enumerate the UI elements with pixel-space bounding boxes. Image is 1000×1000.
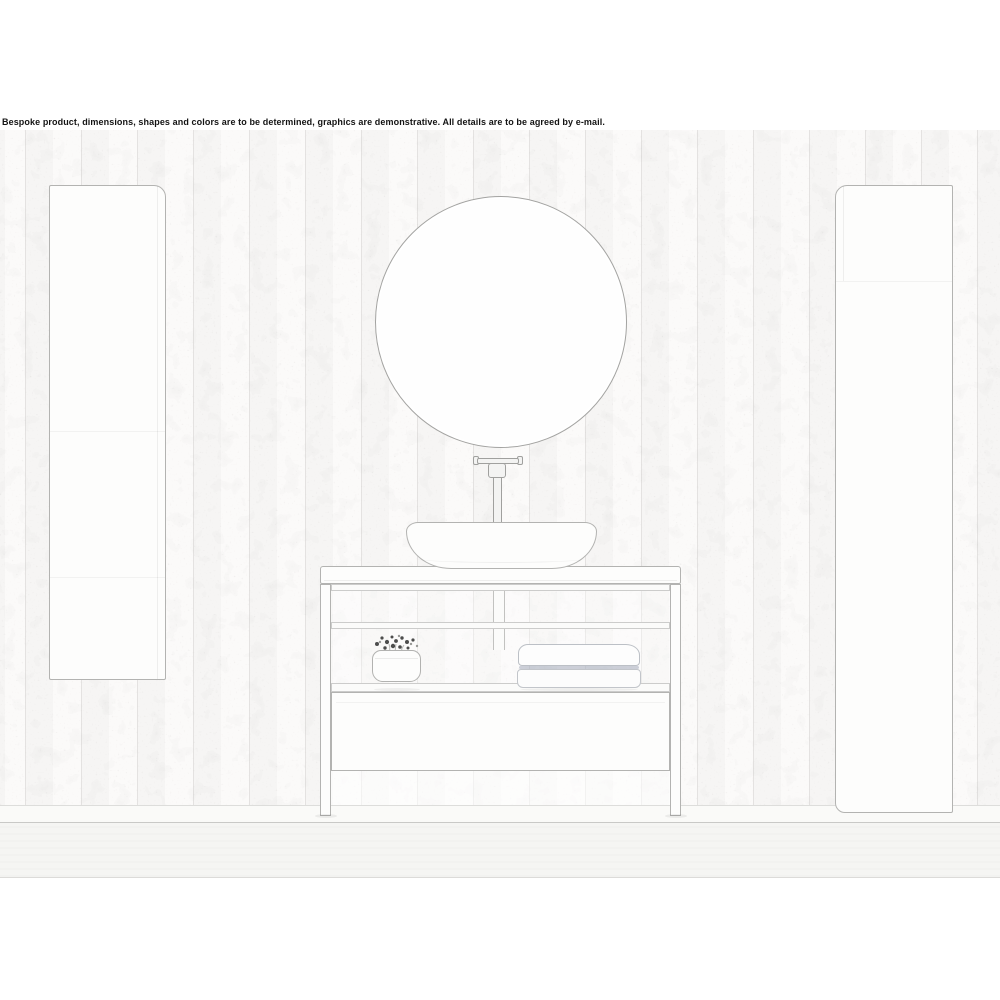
drawer-seam — [336, 702, 665, 703]
vanity-top-rail — [331, 584, 670, 591]
cabinet-door-seam — [50, 577, 165, 578]
drain-pipe — [493, 590, 505, 650]
vanity-leg-right — [670, 584, 681, 816]
vanity-leg-left — [320, 584, 331, 816]
leg-shadow — [665, 814, 687, 818]
cabinet-door-seam — [50, 431, 165, 432]
towel-stack — [517, 642, 641, 690]
round-mirror — [375, 196, 627, 448]
tall-cabinet-left — [49, 185, 166, 680]
flower-pot — [372, 650, 421, 682]
bathroom-vanity-product-render: Bespoke product, dimensions, shapes and … — [0, 0, 1000, 1000]
tall-cabinet-right — [835, 185, 953, 813]
floor — [0, 823, 1000, 878]
pot-rim — [375, 651, 418, 659]
leg-shadow — [315, 814, 337, 818]
towel-bottom — [517, 669, 641, 688]
vessel-sink — [406, 522, 597, 569]
under-vanity-space — [331, 771, 670, 805]
faucet-body — [488, 463, 506, 478]
vanity-drawer — [331, 692, 670, 771]
towel-top — [518, 644, 640, 666]
pot-shadow — [374, 688, 420, 691]
vanity-mid-rail — [331, 622, 670, 629]
faucet-spout-column — [493, 477, 502, 527]
countertop-edge-line — [324, 580, 677, 581]
sink-inner-line — [417, 554, 586, 563]
cabinet-door-seam — [836, 281, 952, 282]
disclaimer-text: Bespoke product, dimensions, shapes and … — [2, 117, 998, 130]
cabinet-door-gap — [843, 186, 844, 281]
cabinet-door-gap — [157, 186, 158, 679]
